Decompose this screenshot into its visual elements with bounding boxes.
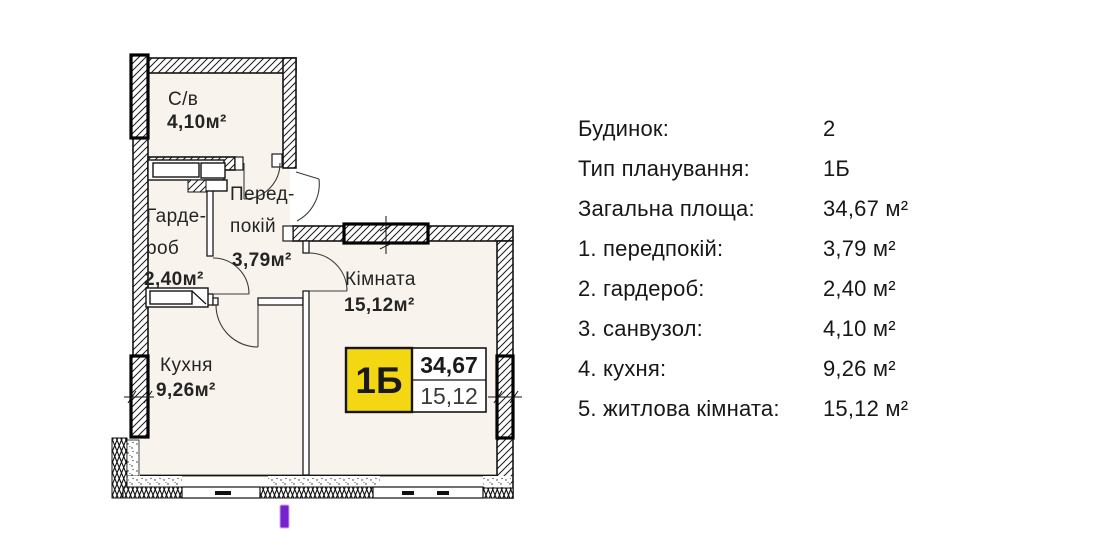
info-row-living-room: 5. житлова кімната:15,12 м² bbox=[578, 389, 1098, 429]
info-value: 9,26 м² bbox=[823, 349, 896, 389]
badge-type-label: 1Б bbox=[355, 360, 402, 401]
info-value: 4,10 м² bbox=[823, 309, 896, 349]
room-area-kitchen: 9,26м² bbox=[156, 380, 216, 401]
info-row-hallway: 1. передпокій:3,79 м² bbox=[578, 229, 1098, 269]
info-label: Загальна площа: bbox=[578, 196, 755, 221]
info-row-bathroom: 3. санвузол:4,10 м² bbox=[578, 309, 1098, 349]
carousel-indicator[interactable] bbox=[280, 505, 289, 528]
info-row-plan-type: Тип планування:1Б bbox=[578, 149, 1098, 189]
floor-plan: С/в 4,10м² Гарде- роб 2,40м² Перед- покі… bbox=[0, 0, 560, 556]
room-label-wardrobe1: Гарде- bbox=[146, 206, 206, 227]
info-row-wardrobe: 2. гардероб:2,40 м² bbox=[578, 269, 1098, 309]
badge-total-area: 34,67 bbox=[420, 352, 478, 378]
info-value: 3,79 м² bbox=[823, 229, 896, 269]
room-area-wardrobe: 2,40м² bbox=[144, 269, 204, 290]
apartment-plan-card: С/в 4,10м² Гарде- роб 2,40м² Перед- покі… bbox=[0, 0, 1116, 556]
room-area-room: 15,12м² bbox=[344, 295, 415, 316]
info-value: 2 bbox=[823, 109, 835, 149]
plan-type-badge: 1Б 34,67 15,12 bbox=[346, 348, 486, 412]
info-row-kitchen: 4. кухня:9,26 м² bbox=[578, 349, 1098, 389]
info-row-building: Будинок:2 bbox=[578, 109, 1098, 149]
room-label-hallway2: покій bbox=[230, 216, 276, 237]
info-row-total-area: Загальна площа:34,67 м² bbox=[578, 189, 1098, 229]
info-label: Будинок: bbox=[578, 116, 669, 141]
info-label: 5. житлова кімната: bbox=[578, 396, 780, 421]
info-label: 2. гардероб: bbox=[578, 276, 705, 301]
info-label: 4. кухня: bbox=[578, 356, 666, 381]
badge-living-area: 15,12 bbox=[420, 383, 478, 409]
room-area-bathroom: 4,10м² bbox=[167, 112, 227, 133]
info-value: 1Б bbox=[823, 149, 850, 189]
info-value: 34,67 м² bbox=[823, 189, 908, 229]
info-label: Тип планування: bbox=[578, 156, 750, 181]
info-label: 1. передпокій: bbox=[578, 236, 723, 261]
info-label: 3. санвузол: bbox=[578, 316, 703, 341]
room-label-wardrobe2: роб bbox=[146, 238, 179, 259]
apartment-info: Будинок:2 Тип планування:1Б Загальна пло… bbox=[578, 109, 1098, 429]
info-value: 2,40 м² bbox=[823, 269, 896, 309]
room-label-kitchen: Кухня bbox=[160, 355, 213, 376]
room-label-bathroom: С/в bbox=[168, 89, 198, 110]
room-label-hallway1: Перед- bbox=[230, 184, 295, 205]
room-area-hallway: 3,79м² bbox=[232, 250, 292, 271]
info-value: 15,12 м² bbox=[823, 389, 908, 429]
room-label-room: Кімната bbox=[345, 269, 416, 290]
